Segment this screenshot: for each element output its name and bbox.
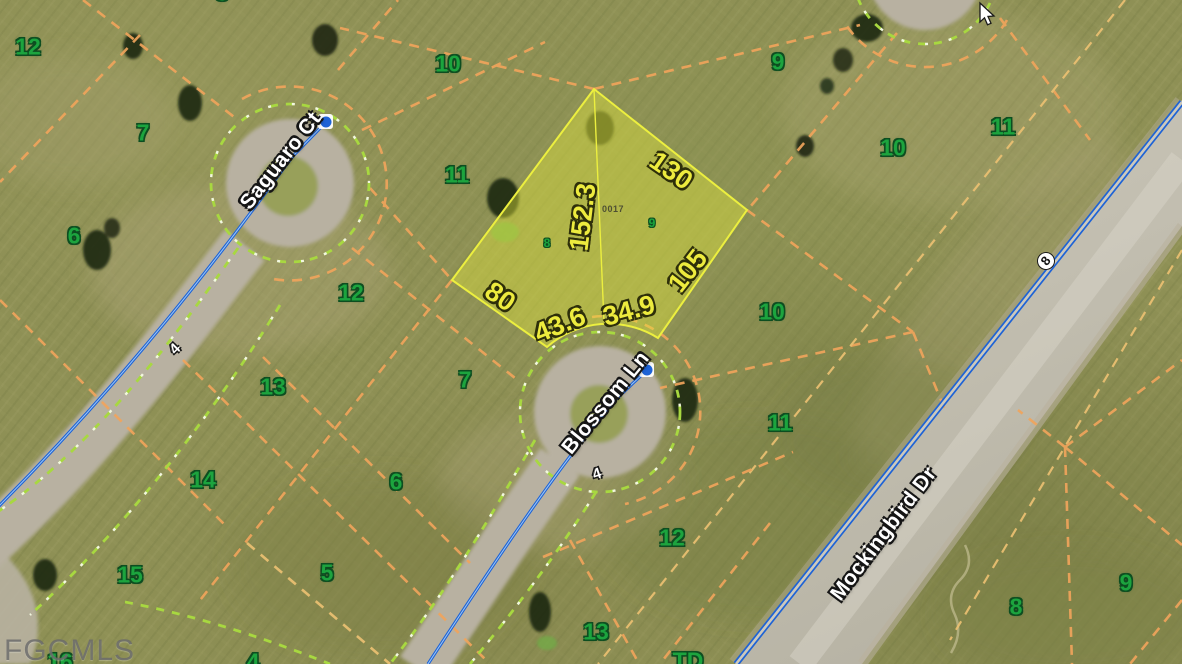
parcel-number: 11 (445, 162, 469, 189)
parcel-number: 4 (247, 649, 260, 664)
fgcmls-watermark: FGCMLS (4, 634, 135, 664)
subject-subparcel-left: 8 (544, 236, 551, 250)
parcel-number: 11 (991, 114, 1015, 141)
parcel-number: 6 (390, 469, 403, 496)
subject-subparcel-right: 9 (649, 216, 656, 230)
parcel-number: 12 (659, 525, 685, 552)
parcel-number: 9 (1120, 570, 1133, 597)
parcel-number: 6 (68, 223, 81, 250)
parcel-number: 7 (459, 367, 472, 394)
parcel-number: 15 (117, 562, 143, 589)
parcel-number: 9 (772, 49, 785, 76)
parcel-number: 8 (216, 0, 229, 7)
map-overlay (0, 0, 1182, 664)
parcel-number: 8 (1010, 594, 1023, 621)
parcel-number: 5 (321, 560, 334, 587)
parcel-number: 11 (768, 410, 792, 437)
parcel-number: 10 (759, 299, 785, 326)
aerial-parcel-map[interactable]: 12 8 7 6 10 11 12 9 10 11 10 11 13 7 14 … (0, 0, 1182, 664)
parcel-number: 12 (338, 280, 364, 307)
parcel-number: 10 (880, 135, 906, 162)
subject-parcel-id: 0017 (602, 204, 624, 214)
parcel-number: 12 (15, 34, 41, 61)
parcel-number: 7 (137, 120, 150, 147)
parcel-number: 10 (435, 51, 461, 78)
parcel-number: 13 (260, 374, 286, 401)
parcel-number: TD (673, 648, 704, 664)
parcel-number: 14 (190, 467, 216, 494)
parcel-number: 13 (583, 619, 609, 646)
